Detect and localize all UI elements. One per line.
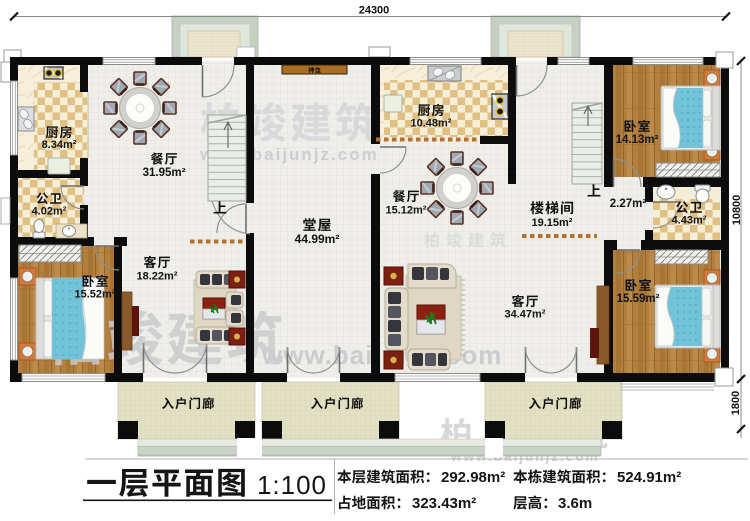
- svg-text:292.98m²: 292.98m²: [441, 469, 505, 486]
- svg-text:323.43m²: 323.43m²: [412, 495, 476, 512]
- svg-text:34.47m²: 34.47m²: [505, 309, 546, 321]
- svg-text:1:100: 1:100: [257, 470, 327, 500]
- svg-text:4.43m²: 4.43m²: [672, 215, 707, 227]
- svg-text:19.15m²: 19.15m²: [532, 217, 573, 229]
- svg-text:10800: 10800: [731, 195, 743, 226]
- svg-text:14.13m²: 14.13m²: [616, 134, 659, 146]
- svg-text:10.48m²: 10.48m²: [411, 118, 452, 130]
- svg-text:1800: 1800: [730, 391, 742, 415]
- svg-text:31.95m²: 31.95m²: [143, 167, 186, 179]
- svg-text:15.52m²: 15.52m²: [75, 289, 116, 301]
- svg-text:15.12m²: 15.12m²: [386, 205, 427, 217]
- svg-text:524.91m²: 524.91m²: [617, 469, 681, 486]
- svg-text:18.22m²: 18.22m²: [137, 271, 178, 283]
- svg-text:24300: 24300: [359, 5, 390, 17]
- svg-text:8.34m²: 8.34m²: [42, 139, 77, 151]
- svg-text:15.59m²: 15.59m²: [617, 293, 660, 305]
- svg-text:4.02m²: 4.02m²: [32, 206, 67, 218]
- svg-text:2.27m²: 2.27m²: [610, 198, 647, 210]
- svg-text:44.99m²: 44.99m²: [295, 232, 340, 246]
- svg-text:www.baijunjz.com: www.baijunjz.com: [261, 340, 502, 370]
- svg-text:3.6m: 3.6m: [558, 495, 592, 512]
